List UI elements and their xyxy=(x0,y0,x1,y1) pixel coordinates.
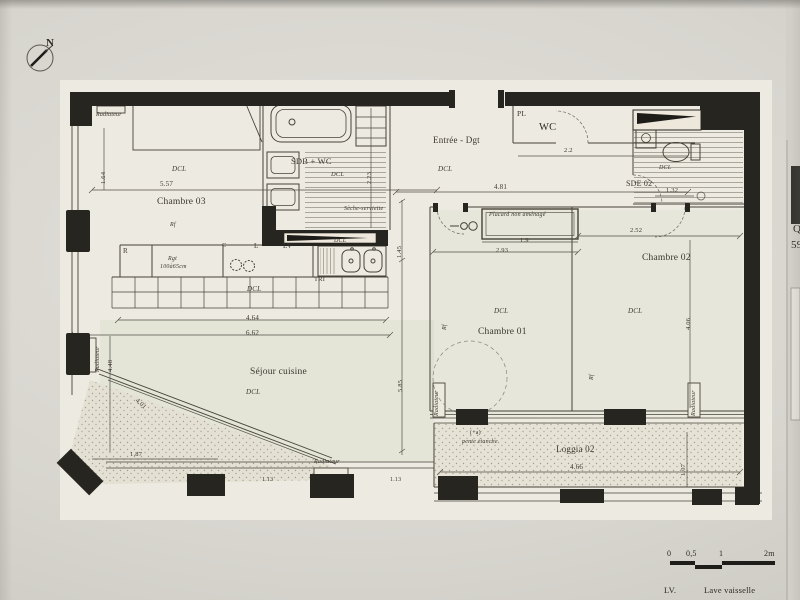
scale-bar xyxy=(670,561,775,569)
dcl-chambre03: DCL xyxy=(172,166,186,173)
dim-chambre03-width: 5.57 xyxy=(160,181,173,188)
room-label-sdb: SDB + WC xyxy=(291,157,332,166)
room-label-sejour: Séjour cuisine xyxy=(250,368,307,378)
dcl-sde02: DCL xyxy=(659,165,671,171)
legend-abbr: LV. xyxy=(664,586,676,595)
dim-entree-height: 1.45 xyxy=(397,246,404,258)
kitchen-lv-label: LV xyxy=(283,243,292,250)
seche-serviette-label: Sèche-serviette xyxy=(344,206,383,212)
dim-sdb-height: 2.23 xyxy=(367,172,374,184)
room-label-pl: PL xyxy=(517,110,526,118)
room-label-loggia02: Loggia 02 xyxy=(556,445,595,454)
radiateur-label-left: Radiateur xyxy=(95,346,101,372)
kitchen-c-label: C xyxy=(222,243,227,250)
room-label-wc: WC xyxy=(539,123,556,134)
dcl-chambre01: DCL xyxy=(494,308,508,315)
dim-loggia-height: 1.07 xyxy=(681,464,688,476)
scale-tick-2m: 2m xyxy=(764,550,775,558)
edge-fragment-1: Q xyxy=(793,224,800,235)
dim-bay-width: 1.87 xyxy=(130,452,142,459)
dim-sejour-height: 5.85 xyxy=(398,380,405,392)
dim-loggia-width: 4.66 xyxy=(570,464,583,471)
scale-tick-05: 0,5 xyxy=(686,550,697,558)
scale-tick-0: 0 xyxy=(667,550,671,558)
kitchen-l-label: L xyxy=(254,243,258,250)
radiateur-label-bottom: Radiateur xyxy=(314,459,340,465)
dcl-sejour: DCL xyxy=(246,389,260,396)
radiateur-label-top: Radiateur xyxy=(96,112,122,118)
dim-sejour-width: 6.62 xyxy=(246,330,259,337)
dim-entree-width: 4.81 xyxy=(494,184,507,191)
edge-fragment-2: 59 xyxy=(791,240,800,251)
dim-chambre01-width: 2.93 xyxy=(496,248,508,255)
kitchen-r-label: R xyxy=(123,248,128,255)
dim-wc-width: 2.2 xyxy=(564,148,573,155)
dcl-entree: DCL xyxy=(438,166,452,173)
dim-placard-width: 1.9 xyxy=(520,238,529,245)
dim-window-a: 1.13 xyxy=(262,477,273,483)
rf-chambre03: Rf xyxy=(170,222,176,228)
room-label-entree: Entrée - Dgt xyxy=(433,136,480,145)
rf-chambre01: Rf xyxy=(442,324,448,330)
dim-chambre03-height: 1.64 xyxy=(101,172,108,184)
pente-mark-label: (+a) xyxy=(470,430,481,436)
dim-sde02-width: 1.32 xyxy=(666,188,678,195)
dim-chambre02-height: 4.06 xyxy=(686,318,693,330)
room-label-chambre02: Chambre 02 xyxy=(642,254,691,264)
dcl-tiles: DCL xyxy=(247,286,261,293)
dcl-chambre02: DCL xyxy=(628,308,642,315)
scale-tick-1: 1 xyxy=(719,550,723,558)
dim-chambre02-width: 2.52 xyxy=(630,228,642,235)
floor-plan-drawing xyxy=(0,0,800,600)
kitchen-rgt-line2: 100à65cm xyxy=(160,264,187,270)
radiateur-label-chambre01: Radiateur xyxy=(434,390,440,416)
kitchen-tri-label: TRI xyxy=(314,277,325,284)
dcl-sdb: DCL xyxy=(331,172,344,179)
room-label-chambre01: Chambre 01 xyxy=(478,328,527,338)
room-label-sde02: SDE 02 xyxy=(626,180,652,188)
placard-label: Placard non aménagé xyxy=(489,212,546,218)
dcl-kitchen: DCL xyxy=(334,238,346,244)
dim-sejour-left-height: 4.48 xyxy=(108,360,115,372)
room-label-chambre03: Chambre 03 xyxy=(157,198,206,208)
floor-plan-photo: N Radiateur Chambre 03 DCL 5.57 1.64 Rf … xyxy=(0,0,800,600)
kitchen-rgt-line1: Rgt xyxy=(168,256,177,262)
radiateur-label-chambre02: Radiateur xyxy=(691,390,697,416)
north-label: N xyxy=(46,38,54,49)
pente-label: pente étanche xyxy=(462,439,498,445)
dim-kitchen-width: 4.64 xyxy=(246,315,259,322)
rf-chambre02: Rf xyxy=(589,374,595,380)
dim-window-b: 1.13 xyxy=(390,477,401,483)
legend-meaning: Lave vaisselle xyxy=(704,586,755,595)
